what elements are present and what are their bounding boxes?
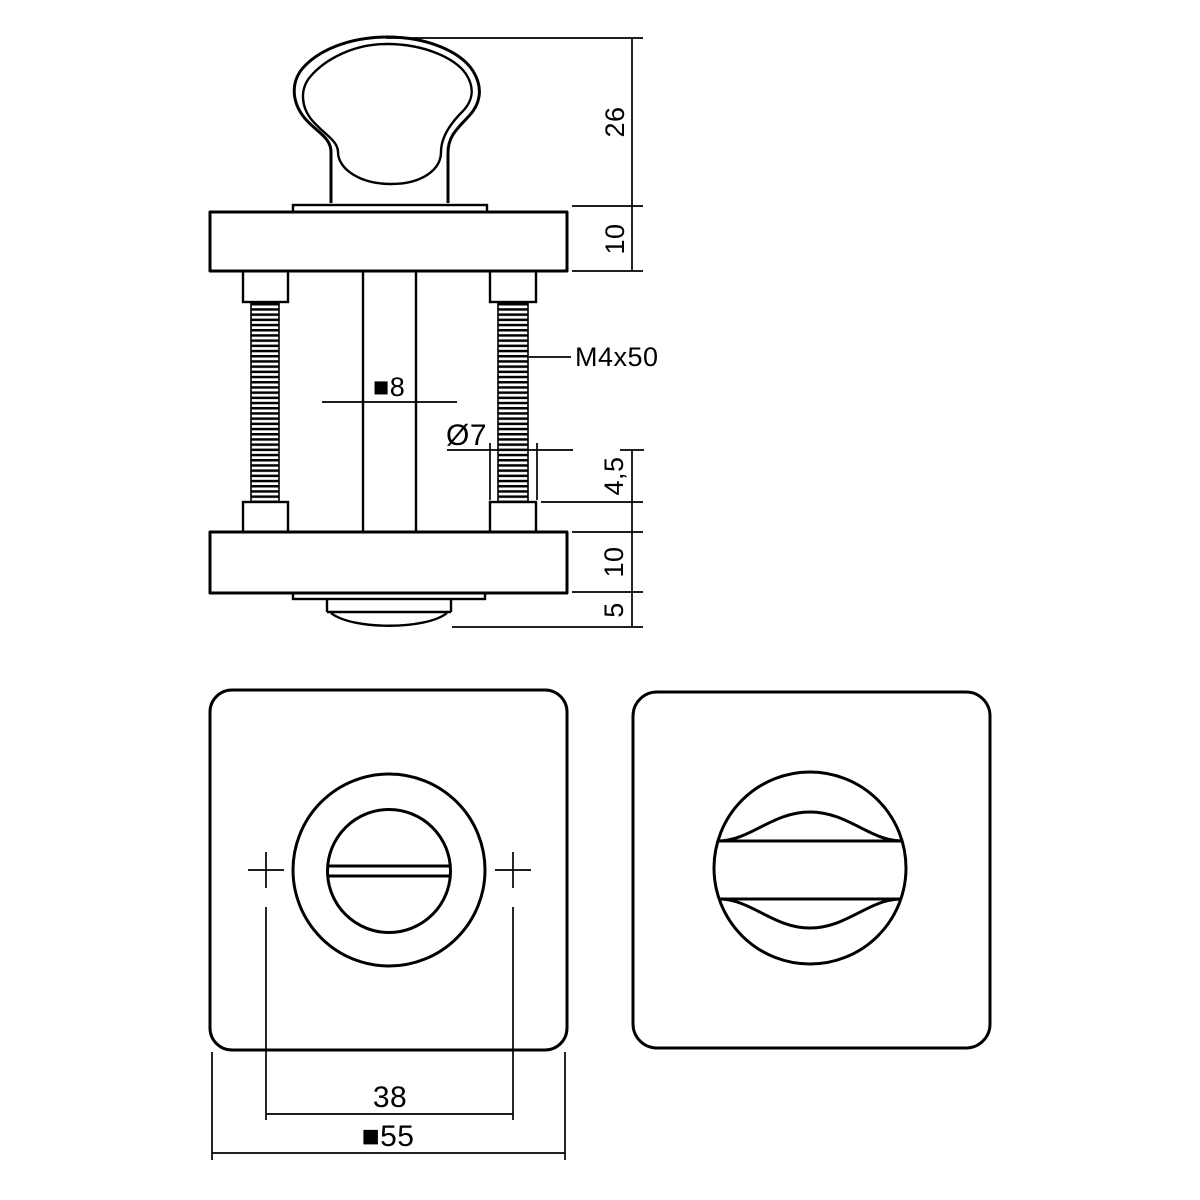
top-rose-plate: [210, 212, 567, 271]
back-rose-plate: [633, 692, 990, 1048]
dim-pin-protrusion: 4,5: [599, 456, 629, 495]
screw-center-mark-right: [495, 852, 531, 888]
thumb-knob-inner-line: [303, 44, 472, 184]
wc-turn-rosette-drawing: ■8 M4x50 Ø7 26 10: [0, 0, 1200, 1200]
dim-top-rose-thickness: 10: [600, 223, 630, 254]
bolt-right-thread: [498, 302, 528, 502]
bottom-rose-collar: [293, 593, 485, 599]
bolt-right-bottom-boss: [490, 502, 536, 532]
bolt-left-top-boss: [243, 271, 288, 302]
bolt-right: [490, 271, 536, 532]
dimension-chain-upper: 26 10: [386, 38, 643, 271]
bottom-rose-plate: [210, 532, 567, 593]
side-view: ■8 M4x50 Ø7 26 10: [210, 37, 659, 627]
front-coin-turn: [328, 810, 451, 933]
dimension-screw-spacing: 38: [266, 907, 513, 1120]
spindle-size-label: ■8: [373, 372, 405, 402]
front-rose-bore: [293, 774, 485, 966]
thumb-grip-lower-curve: [719, 899, 901, 928]
technical-drawing-page: ■8 M4x50 Ø7 26 10: [0, 0, 1200, 1200]
back-view: [633, 692, 990, 1048]
bolt-left: [243, 271, 288, 532]
dim-knob-height: 26: [600, 106, 630, 137]
dim-bottom-rose-thickness: 10: [599, 546, 629, 577]
pin-diameter-label: Ø7: [446, 419, 487, 452]
dome-cap: [327, 599, 451, 612]
thumb-grip-upper-curve: [718, 812, 902, 841]
dimension-chain-lower: 4,5 10 5: [452, 450, 644, 627]
screw-center-mark-left: [248, 852, 284, 888]
bolt-spec-label: M4x50: [575, 342, 659, 372]
dim-screw-hole-spacing: 38: [373, 1081, 407, 1114]
release-button-dome: [327, 599, 451, 626]
bolt-left-bottom-boss: [243, 502, 288, 532]
dome-arc: [331, 613, 447, 626]
dim-release-button-height: 5: [599, 602, 629, 618]
dim-rose-size: ■55: [362, 1120, 415, 1153]
front-view: 38 ■55: [210, 690, 567, 1160]
bolt-right-top-boss: [490, 271, 536, 302]
bolt-left-thread: [251, 302, 279, 502]
back-rose-bore: [714, 772, 906, 964]
